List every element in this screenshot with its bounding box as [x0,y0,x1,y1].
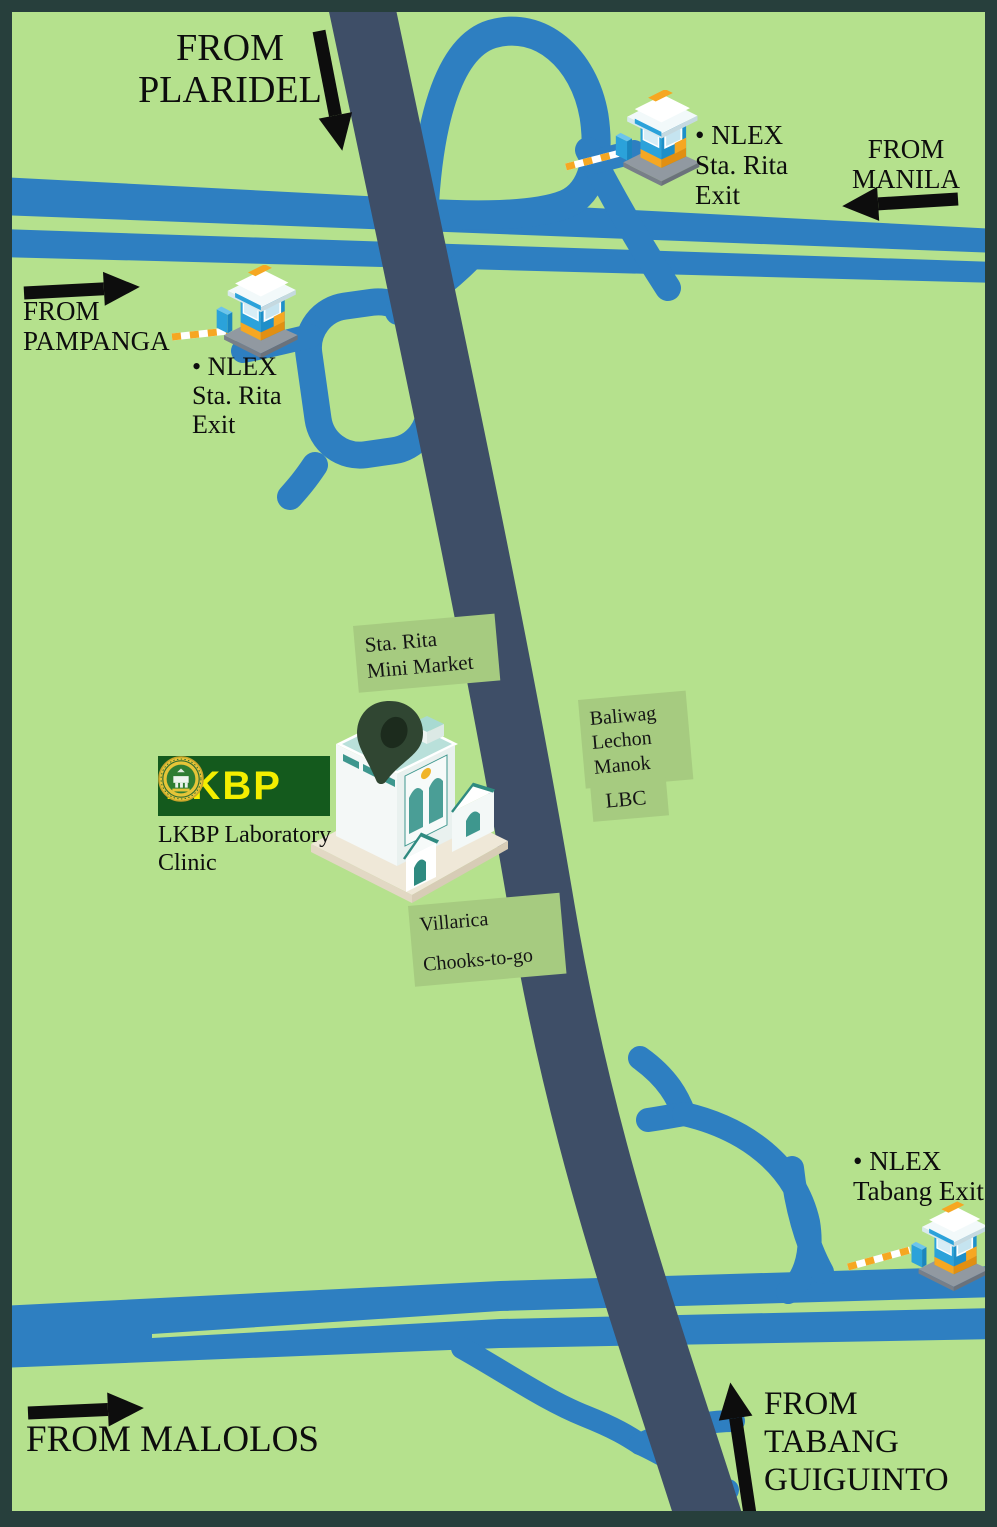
map-graphics [0,0,997,1527]
direction-from-pampanga: FROM PAMPANGA [23,297,170,356]
direction-from-malolos: FROM MALOLOS [26,1420,319,1461]
direction-from-plaridel: FROM PLARIDEL [110,28,350,112]
exit-label-sta-rita-north: • NLEX Sta. Rita Exit [695,120,788,211]
exit-label-tabang: • NLEX Tabang Exit [853,1146,984,1206]
clinic-caption: LKBP Laboratory Clinic [158,822,331,877]
landmark-baliwag-lechon-manok: Baliwag Lechon Manok [578,691,693,789]
landmark-sta-rita-mini-market: Sta. Rita Mini Market [353,614,500,693]
lkbp-logo: LKBP [158,756,330,816]
direction-from-manila: FROM MANILA [845,135,967,194]
exit-label-sta-rita-west: • NLEX Sta. Rita Exit [192,352,282,439]
landmark-lbc: LBC [590,777,669,821]
landmark-villarica-chooks: Villarica Chooks-to-go [408,893,566,987]
direction-from-tabang-guiguinto: FROM TABANG GUIGUINTO [764,1386,949,1500]
lkbp-seal-icon [158,756,204,802]
map-canvas: FROM PLARIDEL FROM MANILA FROM PAMPANGA … [0,0,997,1527]
